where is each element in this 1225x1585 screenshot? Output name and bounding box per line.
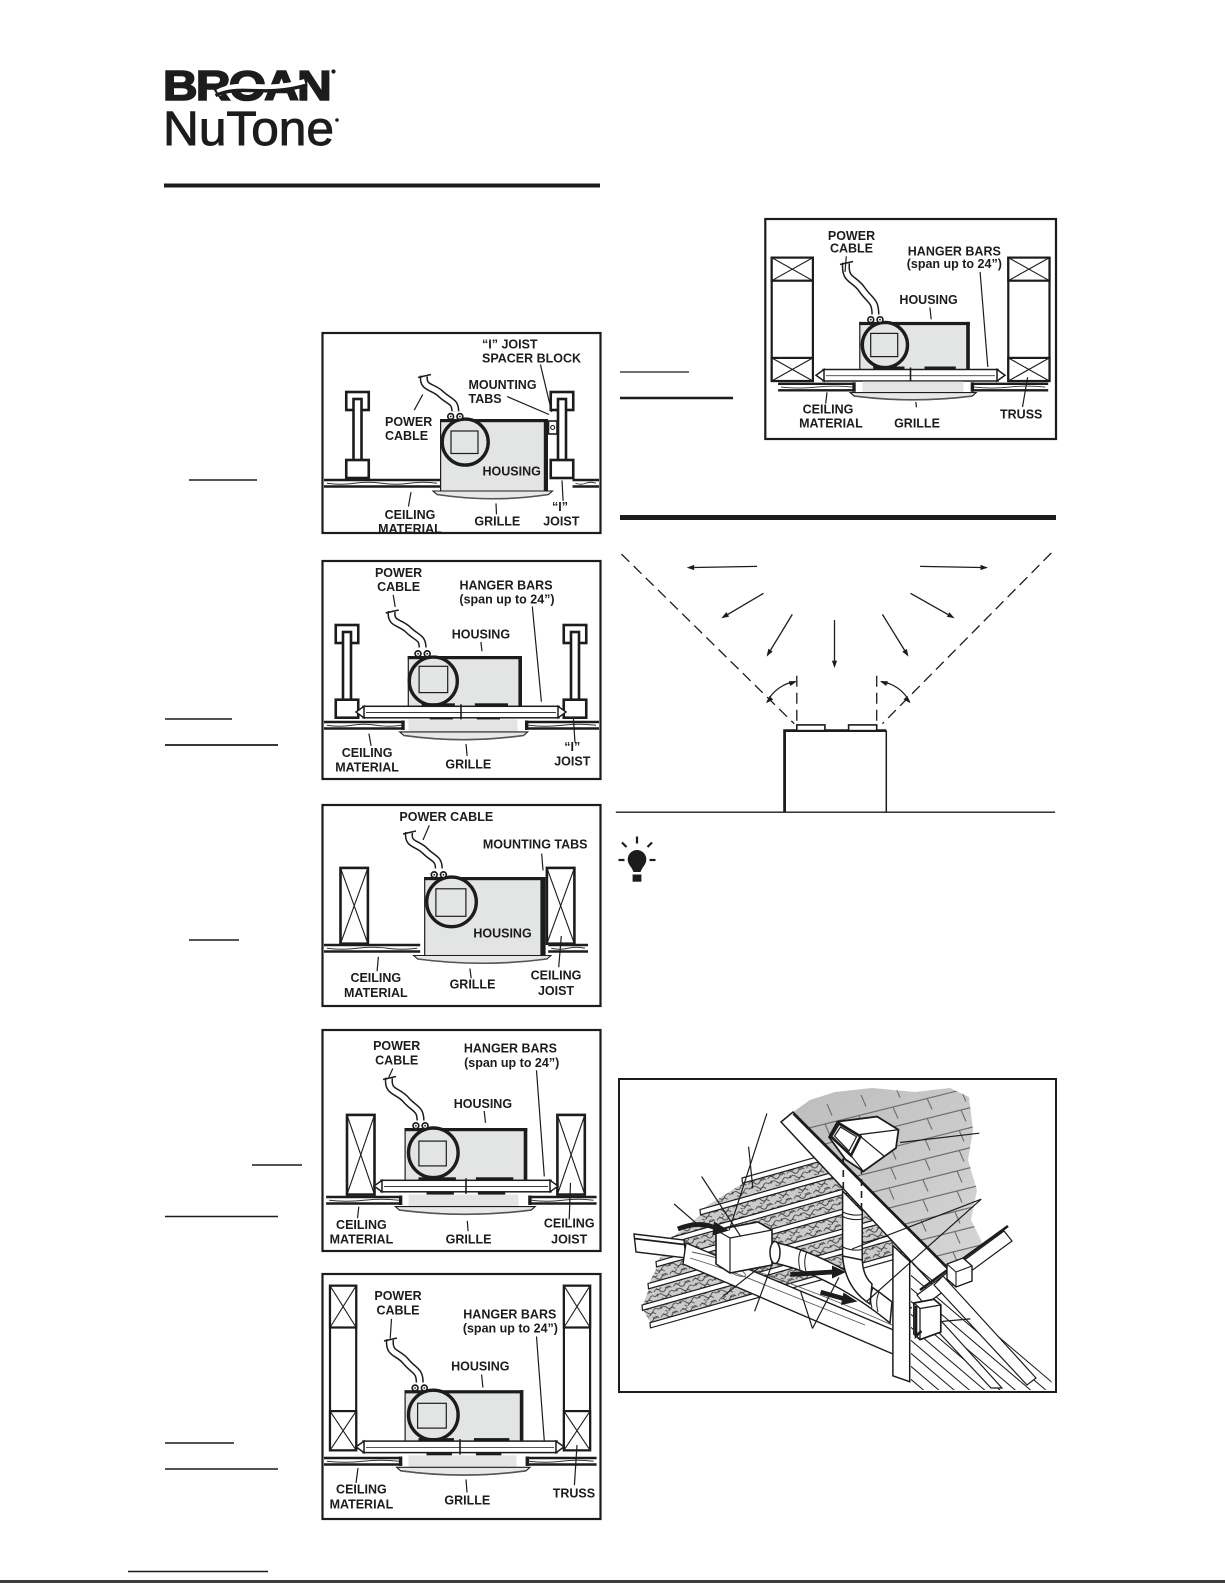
svg-text:TRUSS: TRUSS bbox=[1000, 408, 1042, 422]
svg-text:HANGER BARS: HANGER BARS bbox=[464, 1042, 557, 1056]
svg-text:“I”: “I” bbox=[564, 740, 580, 754]
svg-text:MATERIAL: MATERIAL bbox=[330, 1232, 394, 1246]
svg-text:“I” JOIST: “I” JOIST bbox=[482, 338, 538, 352]
svg-text:CEILING: CEILING bbox=[531, 969, 582, 983]
svg-text:CABLE: CABLE bbox=[385, 429, 428, 443]
svg-text:CABLE: CABLE bbox=[830, 241, 873, 255]
svg-text:TABS: TABS bbox=[469, 392, 502, 406]
svg-text:JOIST: JOIST bbox=[554, 755, 590, 769]
svg-text:HOUSING: HOUSING bbox=[451, 1360, 509, 1374]
svg-text:GRILLE: GRILLE bbox=[450, 978, 496, 992]
svg-text:HOUSING: HOUSING bbox=[483, 465, 541, 479]
svg-text:JOIST: JOIST bbox=[538, 984, 574, 998]
svg-text:MOUNTING: MOUNTING bbox=[469, 378, 537, 392]
svg-text:“I”: “I” bbox=[552, 500, 568, 514]
svg-text:CEILING: CEILING bbox=[336, 1218, 387, 1232]
svg-text:(span up to 24”): (span up to 24”) bbox=[464, 1056, 559, 1070]
svg-text:CEILING: CEILING bbox=[803, 403, 854, 417]
svg-text:GRILLE: GRILLE bbox=[444, 1493, 490, 1507]
svg-text:CEILING: CEILING bbox=[385, 508, 436, 522]
svg-text:POWER: POWER bbox=[373, 1039, 420, 1053]
svg-text:MOUNTING TABS: MOUNTING TABS bbox=[483, 838, 588, 852]
svg-text:(span up to 24”): (span up to 24”) bbox=[459, 593, 554, 607]
svg-text:CABLE: CABLE bbox=[376, 1303, 419, 1317]
svg-text:HOUSING: HOUSING bbox=[452, 628, 510, 642]
svg-text:HANGER BARS: HANGER BARS bbox=[459, 579, 552, 593]
svg-text:GRILLE: GRILLE bbox=[894, 417, 940, 431]
svg-text:HOUSING: HOUSING bbox=[454, 1097, 512, 1111]
svg-text:CEILING: CEILING bbox=[336, 1482, 387, 1496]
svg-text:CABLE: CABLE bbox=[377, 580, 420, 594]
svg-text:CEILING: CEILING bbox=[342, 746, 393, 760]
svg-text:JOIST: JOIST bbox=[543, 515, 579, 529]
svg-text:POWER CABLE: POWER CABLE bbox=[399, 810, 493, 824]
svg-text:CABLE: CABLE bbox=[375, 1053, 418, 1067]
svg-text:POWER: POWER bbox=[375, 566, 422, 580]
svg-text:GRILLE: GRILLE bbox=[474, 515, 520, 529]
svg-text:NuTone: NuTone bbox=[163, 103, 334, 156]
svg-text:HOUSING: HOUSING bbox=[473, 927, 531, 941]
svg-text:SPACER BLOCK: SPACER BLOCK bbox=[482, 352, 581, 366]
svg-text:GRILLE: GRILLE bbox=[446, 1232, 492, 1246]
svg-text:HANGER BARS: HANGER BARS bbox=[463, 1307, 556, 1321]
svg-text:MATERIAL: MATERIAL bbox=[335, 760, 399, 774]
svg-text:HOUSING: HOUSING bbox=[899, 293, 957, 307]
svg-text:POWER: POWER bbox=[374, 1289, 421, 1303]
svg-text:MATERIAL: MATERIAL bbox=[799, 417, 863, 431]
svg-text:GRILLE: GRILLE bbox=[445, 758, 491, 772]
svg-text:MATERIAL: MATERIAL bbox=[330, 1497, 394, 1511]
svg-text:POWER: POWER bbox=[385, 415, 432, 429]
svg-text:MATERIAL: MATERIAL bbox=[378, 522, 442, 536]
svg-text:(span up to 24”): (span up to 24”) bbox=[907, 257, 1002, 271]
svg-text:MATERIAL: MATERIAL bbox=[344, 986, 408, 1000]
svg-text:(span up to 24”): (span up to 24”) bbox=[463, 1322, 558, 1336]
svg-text:TRUSS: TRUSS bbox=[553, 1486, 595, 1500]
svg-text:JOIST: JOIST bbox=[551, 1232, 587, 1246]
svg-text:CEILING: CEILING bbox=[350, 971, 401, 985]
